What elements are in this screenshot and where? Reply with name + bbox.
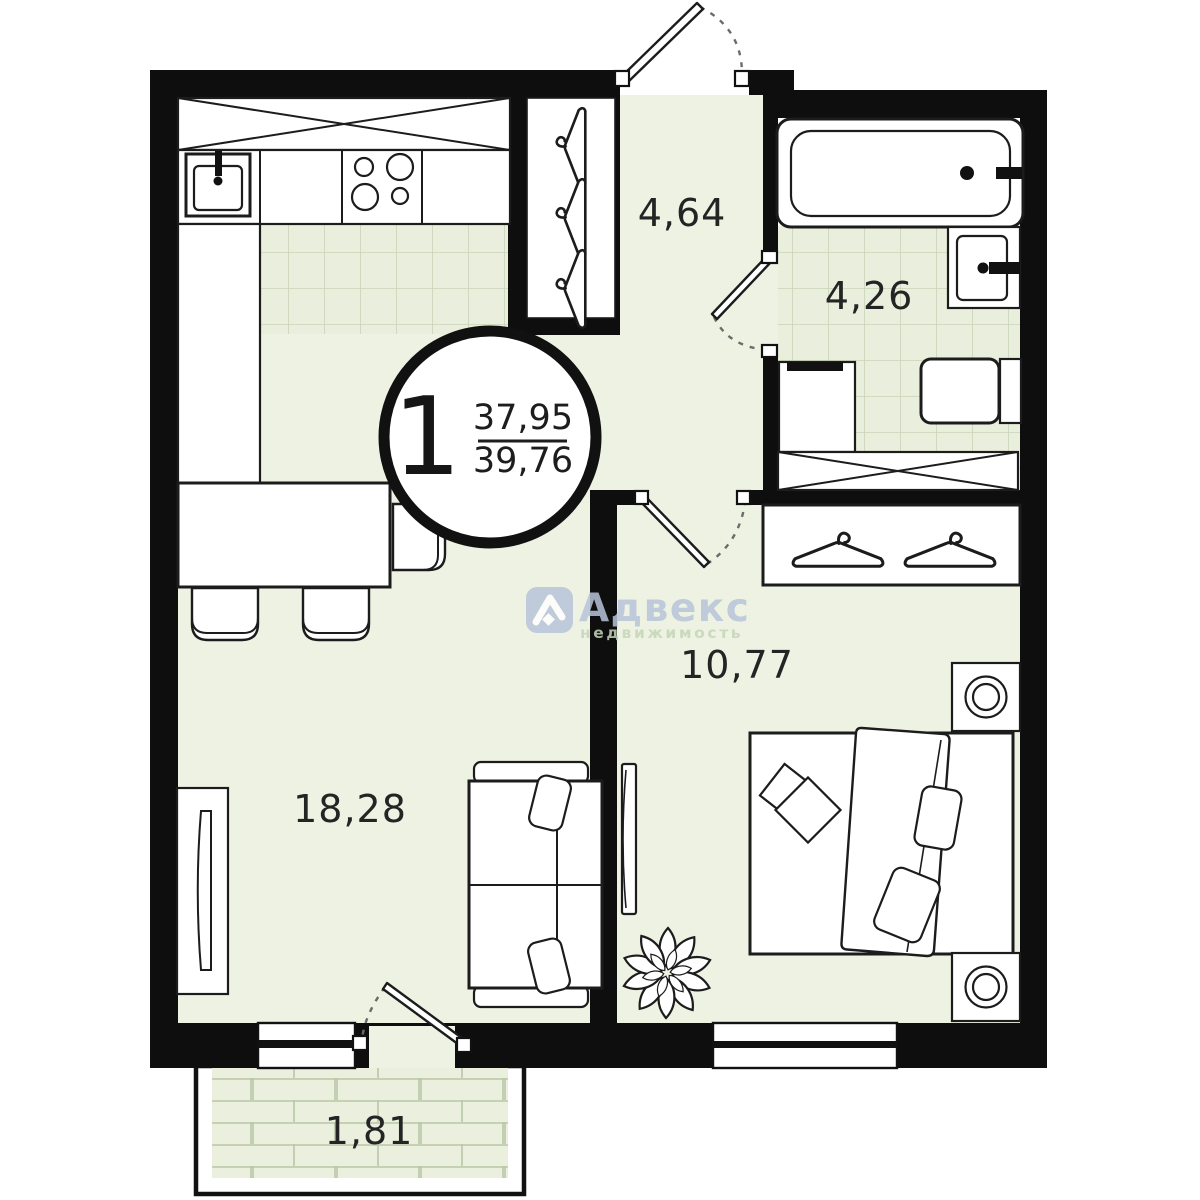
entry-door: [615, 3, 749, 86]
bedroom-window: [713, 1023, 897, 1068]
wall-top-right: [778, 90, 1047, 118]
drain-icon: [960, 166, 974, 180]
area-badge: 1 37,95 39,76: [384, 331, 596, 543]
counter-column: [178, 224, 260, 483]
wall-bedroom-door-left: [590, 490, 637, 505]
sofa: [469, 762, 602, 1007]
badge-area-total: 37,95: [473, 398, 573, 438]
kitchen-tile-floor: [260, 224, 510, 334]
faucet-icon: [215, 151, 222, 176]
label-bathroom: 4,26: [825, 274, 914, 318]
watermark-logo-icon: [526, 587, 573, 633]
floor-plan-svg: Адвекс недвижимость 18,28 4,64 4,26 10,7…: [0, 0, 1200, 1200]
upper-cabinet: [178, 98, 510, 150]
door-post: [457, 1038, 471, 1052]
kitchen-sink: [186, 151, 250, 216]
nightstand-bottom: [952, 953, 1020, 1021]
bed: [750, 728, 1013, 956]
chair: [192, 588, 258, 640]
living-room-window: [258, 1023, 355, 1068]
radiator: [177, 788, 228, 994]
washing-machine: [779, 362, 855, 452]
door-post: [737, 491, 750, 504]
radiator-panel: [198, 811, 211, 970]
toilet: [921, 359, 1021, 423]
storage-cabinet: [778, 452, 1018, 490]
door-post: [735, 71, 749, 86]
label-hallway: 4,64: [638, 191, 727, 235]
label-balcony: 1,81: [325, 1109, 414, 1153]
badge-area-living: 39,76: [473, 441, 573, 481]
badge-rooms-count: 1: [393, 375, 462, 500]
door-post: [762, 345, 777, 357]
label-bedroom: 10,77: [680, 643, 794, 687]
wall-top-left: [150, 70, 615, 98]
faucet-icon: [989, 262, 1020, 274]
entry-closet: [527, 98, 615, 328]
door-post: [635, 491, 648, 504]
door-post: [762, 251, 777, 263]
wall-bathroom-lower: [763, 357, 778, 490]
chair: [303, 588, 369, 640]
wall-bedroom-door-right: [749, 490, 1020, 505]
tv: [622, 764, 636, 914]
wall-left: [150, 70, 178, 1068]
washbasin: [948, 227, 1020, 308]
toilet-tank: [1000, 359, 1021, 423]
wall-right: [1020, 90, 1047, 1068]
door-post: [615, 71, 629, 86]
dining-table: [178, 483, 390, 587]
door-post: [353, 1036, 367, 1050]
wardrobe: [763, 505, 1020, 585]
faucet-icon: [996, 167, 1022, 179]
floor-plan: Адвекс недвижимость 18,28 4,64 4,26 10,7…: [0, 0, 1200, 1200]
watermark-subtitle: недвижимость: [580, 624, 743, 642]
bathtub: [777, 119, 1023, 227]
nightstand-top: [952, 663, 1020, 731]
label-kitchen-living: 18,28: [293, 787, 407, 831]
